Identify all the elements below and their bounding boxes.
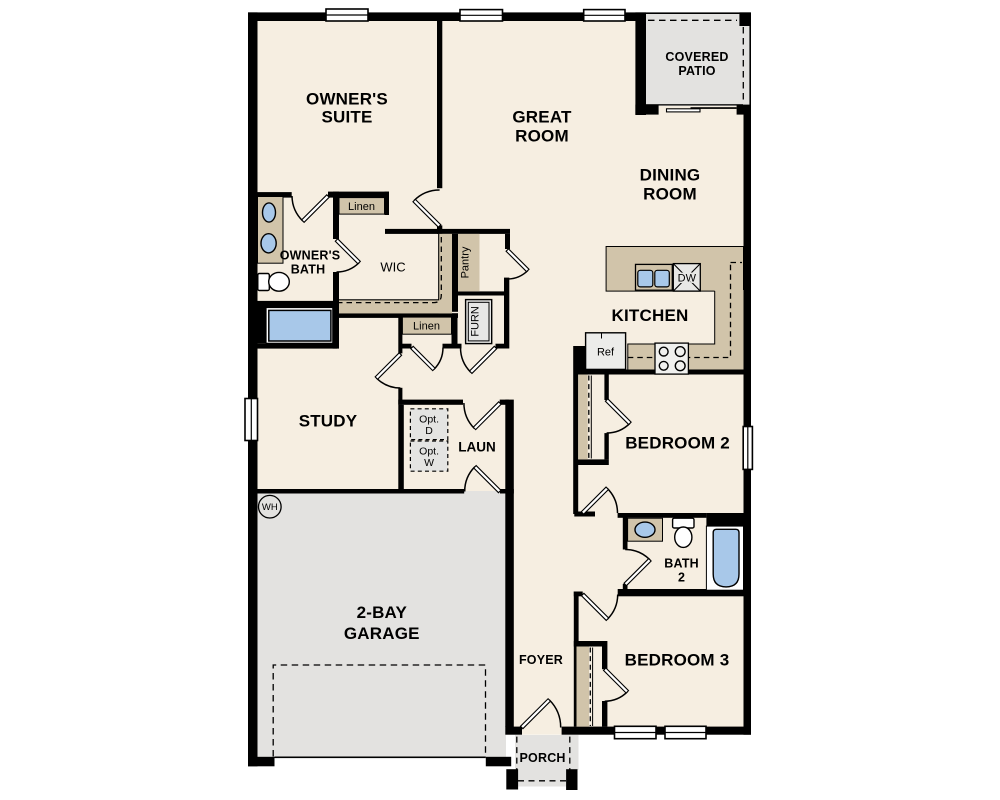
svg-text:Linen: Linen [348, 201, 375, 213]
svg-text:DW: DW [678, 272, 697, 284]
svg-text:PORCH: PORCH [520, 751, 566, 765]
svg-text:WH: WH [262, 502, 278, 513]
svg-text:2: 2 [678, 571, 685, 585]
svg-text:COVERED: COVERED [665, 50, 728, 64]
svg-text:STUDY: STUDY [299, 412, 358, 431]
svg-text:BEDROOM 2: BEDROOM 2 [625, 434, 730, 453]
svg-text:BATH: BATH [291, 263, 326, 277]
svg-text:Pantry: Pantry [460, 246, 472, 278]
svg-text:BEDROOM 3: BEDROOM 3 [625, 651, 730, 670]
svg-text:GARAGE: GARAGE [344, 624, 420, 643]
svg-text:DINING: DINING [640, 166, 701, 185]
svg-text:OWNER'S: OWNER'S [306, 90, 388, 109]
svg-text:PATIO: PATIO [678, 64, 715, 78]
svg-text:Linen: Linen [413, 321, 440, 333]
svg-text:FURN: FURN [470, 306, 482, 337]
svg-text:LAUN: LAUN [458, 440, 496, 455]
svg-text:D: D [425, 425, 433, 437]
svg-text:Ref: Ref [597, 347, 615, 359]
svg-text:W: W [424, 457, 434, 469]
svg-text:SUITE: SUITE [321, 108, 372, 127]
svg-text:2-BAY: 2-BAY [357, 603, 408, 622]
svg-text:KITCHEN: KITCHEN [612, 306, 689, 325]
svg-text:GREAT: GREAT [512, 108, 572, 127]
svg-text:WIC: WIC [380, 260, 405, 275]
svg-text:Opt.: Opt. [419, 414, 439, 426]
svg-text:OWNER'S: OWNER'S [280, 249, 341, 263]
svg-text:Opt.: Opt. [419, 446, 439, 458]
svg-text:BATH: BATH [664, 557, 699, 571]
svg-text:ROOM: ROOM [643, 185, 697, 204]
svg-text:ROOM: ROOM [515, 127, 569, 146]
svg-text:FOYER: FOYER [519, 653, 563, 667]
